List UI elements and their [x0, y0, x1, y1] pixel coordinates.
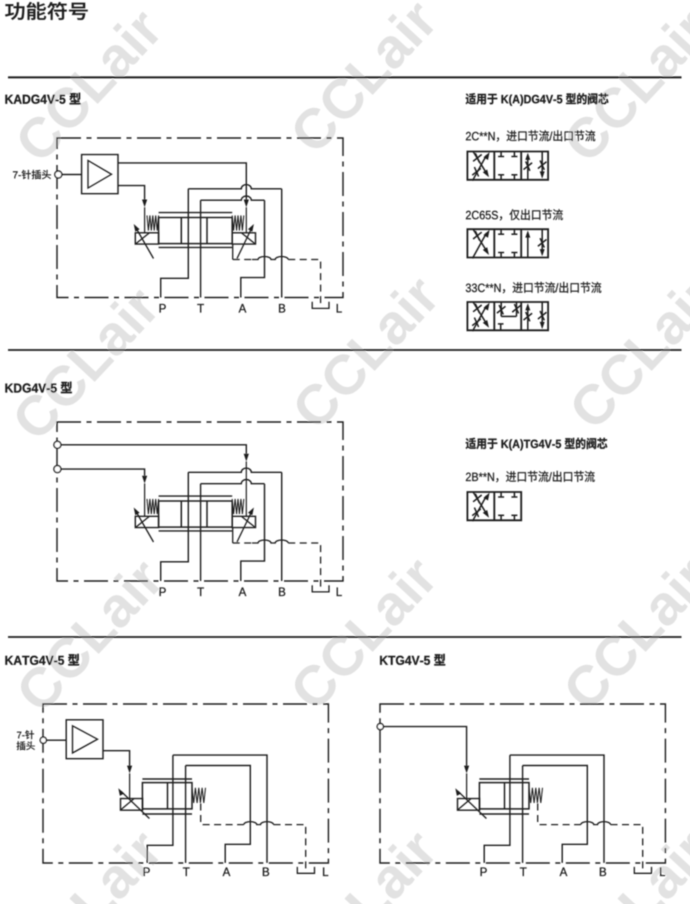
svg-text:CCLair: CCLair: [3, 0, 174, 174]
svg-text:P: P: [143, 867, 151, 879]
svg-text:CCLair: CCLair: [278, 818, 449, 904]
svg-text:P: P: [159, 304, 167, 316]
svg-text:L: L: [336, 587, 343, 599]
svg-text:P: P: [159, 587, 167, 599]
svg-text:CCLair: CCLair: [3, 818, 174, 904]
svg-text:T: T: [197, 304, 204, 316]
svg-text:P: P: [480, 867, 488, 879]
svg-text:A: A: [239, 587, 247, 599]
svg-text:CCLair: CCLair: [278, 545, 449, 722]
svg-text:L: L: [322, 867, 329, 879]
svg-text:B: B: [278, 304, 286, 316]
svg-text:B: B: [278, 587, 286, 599]
svg-text:B: B: [262, 867, 270, 879]
svg-text:A: A: [239, 304, 247, 316]
svg-text:T: T: [183, 867, 190, 879]
svg-text:CCLair: CCLair: [551, 0, 690, 174]
svg-text:CCLair: CCLair: [4, 547, 175, 724]
svg-text:CCLair: CCLair: [551, 545, 690, 722]
svg-text:CCLair: CCLair: [278, 0, 449, 165]
svg-text:T: T: [520, 867, 527, 879]
svg-text:L: L: [659, 867, 666, 879]
svg-text:T: T: [197, 587, 204, 599]
svg-text:CCLair: CCLair: [557, 264, 690, 441]
svg-text:A: A: [560, 867, 568, 879]
svg-text:A: A: [223, 867, 231, 879]
svg-text:CCLair: CCLair: [280, 264, 451, 441]
svg-text:B: B: [599, 867, 607, 879]
svg-text:L: L: [336, 304, 343, 316]
svg-text:CCLair: CCLair: [0, 275, 171, 452]
svg-text:CCLair: CCLair: [551, 818, 690, 904]
